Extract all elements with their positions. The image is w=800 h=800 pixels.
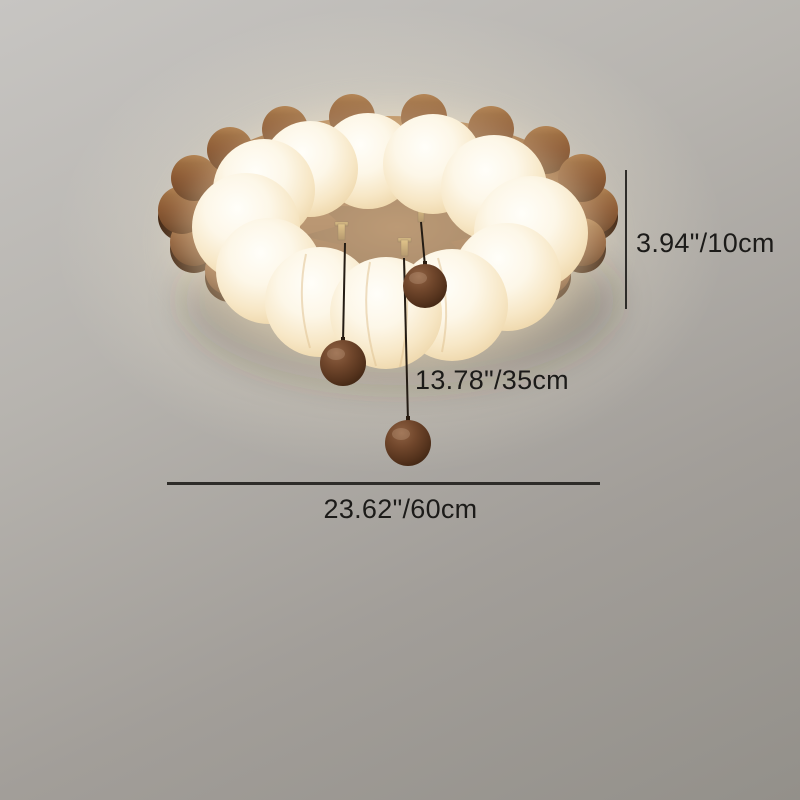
width-dimension-line [167, 482, 600, 485]
wood-ball-pendant [385, 416, 431, 466]
height-dimension-label: 3.94"/10cm [636, 229, 775, 259]
height-dimension-line [625, 170, 627, 309]
product-photo: 3.94"/10cm 13.78"/35cm 23.62"/60cm [0, 0, 800, 800]
width-dimension-label: 23.62"/60cm [283, 495, 518, 525]
lamp-illustration [0, 0, 800, 800]
drop-dimension-label: 13.78"/35cm [415, 366, 569, 396]
